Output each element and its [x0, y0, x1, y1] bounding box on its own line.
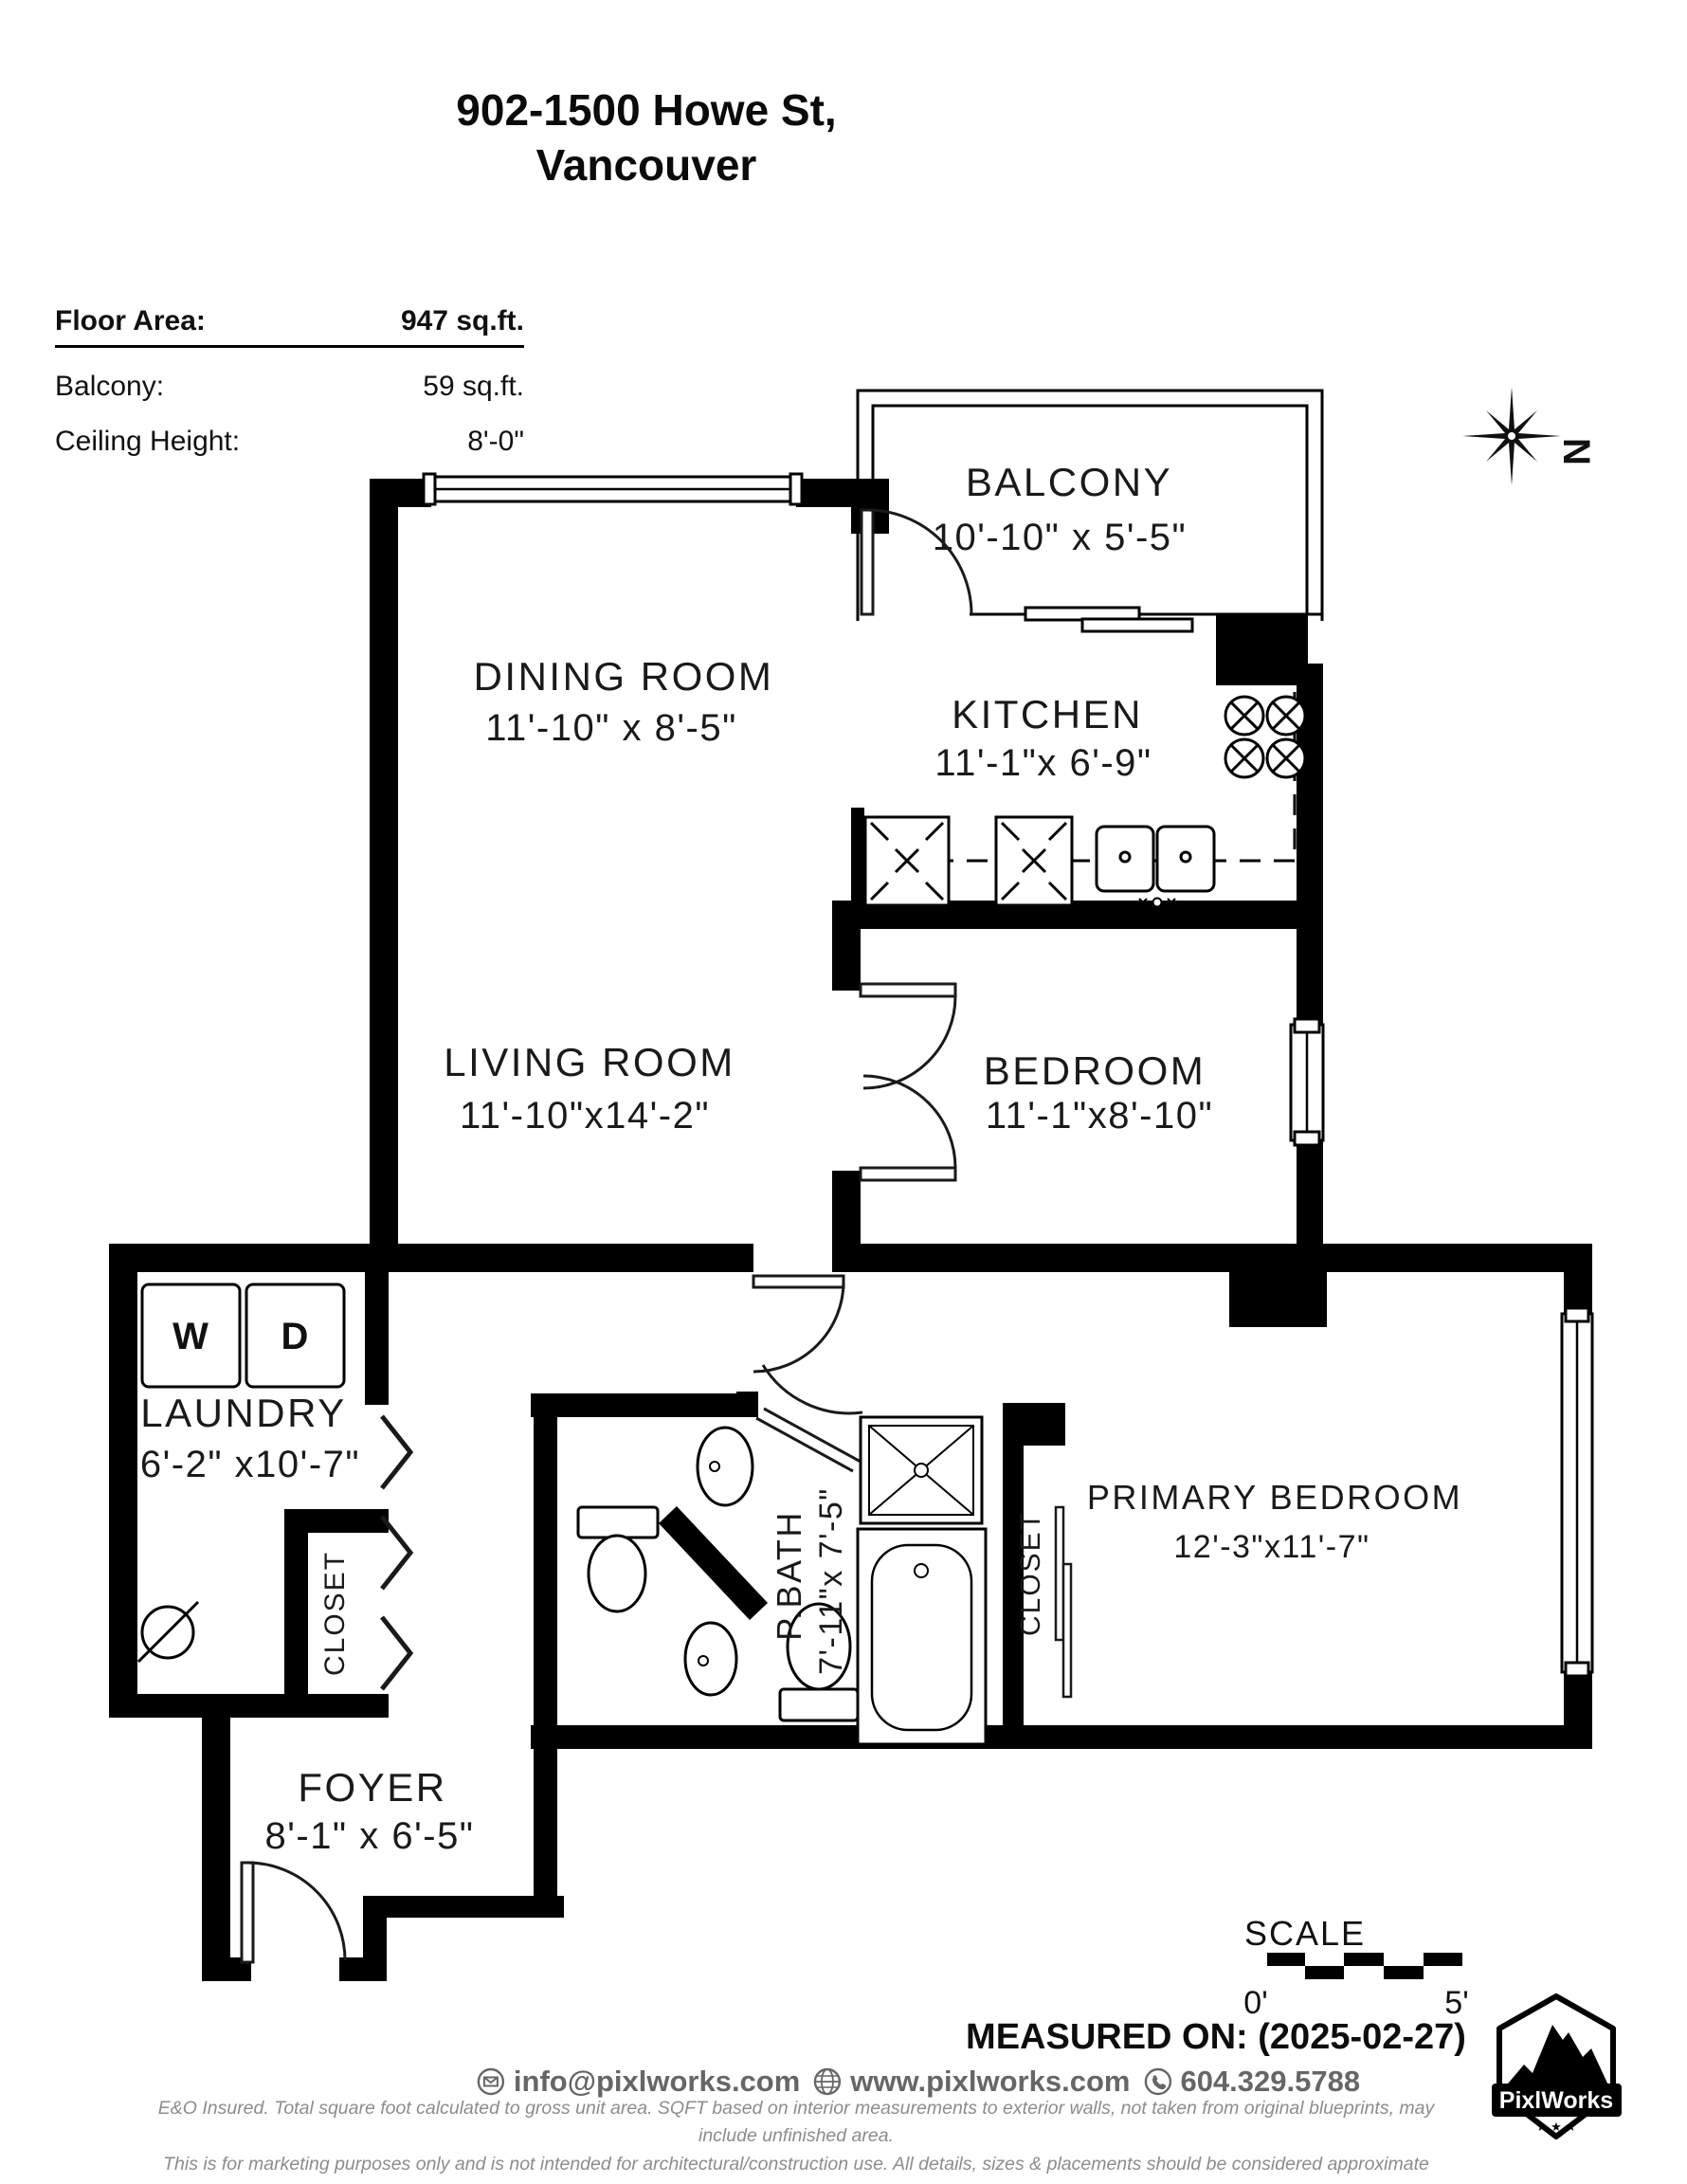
phone-icon — [1143, 2067, 1171, 2096]
room-dims-dining: 11'-10" x 8'-5" — [485, 707, 737, 749]
room-label-laundry: LAUNDRY — [140, 1391, 346, 1435]
toilet-icon — [578, 1507, 658, 1611]
room-dims-kitchen: 11'-1"x 6'-9" — [934, 742, 1152, 784]
room-dims-foyer: 8'-1" x 6'-5" — [264, 1815, 474, 1857]
disclaimer-line1: E&O Insured. Total square foot calculate… — [156, 2095, 1436, 2151]
kitchen-sink-icon — [1097, 827, 1214, 907]
logo-stars: ★ ★ ★ — [1536, 2120, 1576, 2134]
room-label-primary: PRIMARY BEDROOM — [1087, 1478, 1462, 1517]
contact-row: info@pixlworks.com www.pixlworks.com 604… — [477, 2065, 1360, 2099]
scale-bar: SCALE 0' 5' — [1243, 1914, 1468, 2021]
phone-group: 604.329.5788 — [1143, 2065, 1360, 2099]
compass-north-label: N — [1555, 438, 1597, 465]
bathtub-icon — [858, 1529, 986, 1744]
balcony-outline — [858, 391, 1322, 631]
closet-label-hall: CLOSET — [319, 1551, 351, 1676]
room-label-bedroom: BEDROOM — [984, 1048, 1206, 1093]
hall-door — [753, 1276, 843, 1372]
appliance-icon — [865, 817, 949, 905]
sink-icon — [685, 1623, 736, 1695]
disclaimer-line2: This is for marketing purposes only and … — [156, 2151, 1436, 2184]
website-text: www.pixlworks.com — [850, 2065, 1130, 2099]
measured-on: MEASURED ON: (2025-02-27) — [966, 2017, 1466, 2058]
email-text: info@pixlworks.com — [514, 2065, 800, 2099]
bath-sliding-door — [756, 1409, 861, 1471]
logo-brand: PixlWorks — [1499, 2087, 1613, 2114]
room-dims-balcony: 10'-10" x 5'-5" — [933, 517, 1188, 558]
room-label-pbath: P.BATH — [770, 1510, 808, 1641]
room-dims-living: 11'-10"x14'-2" — [460, 1095, 710, 1137]
disclaimer: E&O Insured. Total square foot calculate… — [156, 2095, 1436, 2184]
closet-sliding-doors — [1056, 1507, 1071, 1697]
washer-label: W — [172, 1316, 209, 1357]
website-group: www.pixlworks.com — [813, 2065, 1130, 2099]
walls — [109, 479, 1592, 1981]
room-dims-bedroom: 11'-1"x8'-10" — [986, 1095, 1213, 1137]
window-dining — [424, 474, 802, 504]
floorplan-page: 902-1500 Howe St, Vancouver Floor Area: … — [0, 0, 1687, 2184]
room-label-balcony: BALCONY — [966, 460, 1172, 504]
scale-end: 5' — [1444, 1985, 1468, 2021]
primary-bedroom-door — [763, 1365, 862, 1413]
room-label-living: LIVING ROOM — [444, 1040, 735, 1084]
bedroom-double-door — [861, 984, 955, 1180]
scale-title: SCALE — [1244, 1914, 1366, 1953]
room-dims-primary: 12'-3"x11'-7" — [1173, 1529, 1370, 1565]
compass-rose-icon: N — [1462, 387, 1597, 485]
scale-start: 0' — [1243, 1985, 1267, 2021]
window-primary-bedroom — [1562, 1308, 1592, 1676]
water-heater-icon — [138, 1602, 198, 1662]
floorplan-drawing: W D — [0, 0, 1687, 2184]
bifold-door-icons — [382, 1416, 410, 1689]
email-icon — [477, 2067, 505, 2096]
window-bedroom — [1291, 1019, 1323, 1145]
dryer-label: D — [281, 1316, 309, 1357]
phone-text: 604.329.5788 — [1180, 2065, 1360, 2099]
stove-burners-icon — [1225, 697, 1305, 777]
pixlworks-logo: PixlWorks ★ ★ ★ — [1492, 1996, 1622, 2137]
globe-icon — [813, 2067, 842, 2096]
room-label-kitchen: KITCHEN — [952, 692, 1143, 737]
room-label-dining: DINING ROOM — [474, 654, 774, 699]
room-dims-laundry: 6'-2" x10'-7" — [140, 1444, 360, 1485]
room-label-foyer: FOYER — [298, 1765, 446, 1810]
sliding-door-panel — [1082, 619, 1192, 631]
room-dims-pbath: 7'-11"x 7'-5" — [813, 1487, 849, 1675]
closet-label-primary: CLOSET — [1015, 1511, 1046, 1636]
appliance-icon — [996, 817, 1072, 905]
shower-icon — [861, 1417, 982, 1523]
entry-door — [242, 1863, 345, 1962]
email-group: info@pixlworks.com — [477, 2065, 800, 2099]
sink-icon — [698, 1428, 753, 1505]
